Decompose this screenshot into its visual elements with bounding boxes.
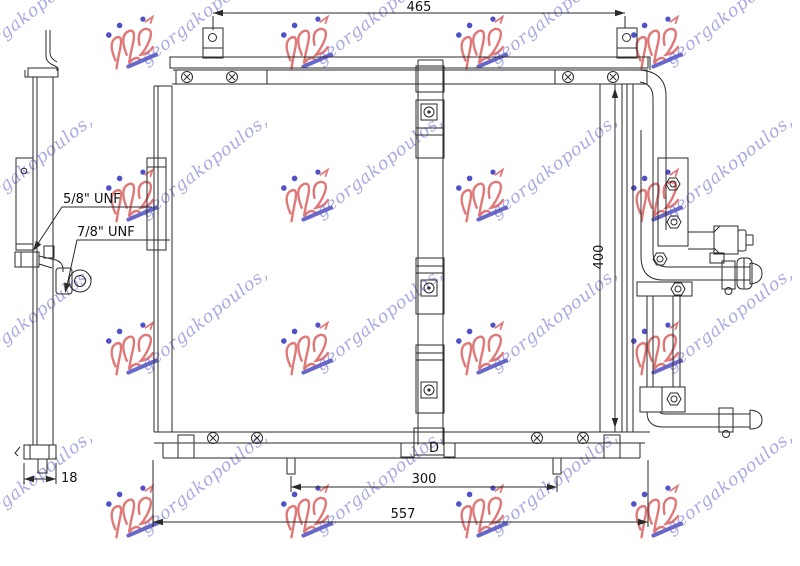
dim-side-depth-value: 18 — [61, 471, 78, 486]
dim-height-value: 400 — [592, 245, 607, 270]
drawing-canvas: georgakopoulos, georgakopoulos, georgako… — [0, 0, 800, 566]
bottom-rail — [154, 428, 650, 474]
front-view-frame — [147, 28, 650, 432]
dim-bottom-inner-value: 300 — [412, 472, 437, 487]
center-mark-label: D — [429, 441, 439, 456]
fitting-large-label: 7/8" UNF — [77, 225, 135, 240]
bottom-rail-screws — [208, 433, 589, 444]
rail-screws — [182, 72, 619, 83]
dim-height: 400 — [592, 88, 618, 428]
fitting-small-label: 5/8" UNF — [63, 192, 121, 207]
dim-overall-width-value: 557 — [391, 507, 416, 522]
condenser-technical-drawing: 18 5/8" UNF 7/8" UNF 465 — [0, 0, 800, 566]
fitting-callouts: 5/8" UNF 7/8" UNF — [30, 192, 170, 294]
dim-bottom-inner: 300 — [291, 472, 557, 492]
dim-overall-width: 557 — [153, 460, 648, 527]
center-divider — [416, 60, 444, 445]
dim-top-width-value: 465 — [407, 0, 432, 15]
side-view — [15, 30, 91, 473]
dim-top-width: 465 — [213, 0, 625, 30]
dim-side-depth: 18 — [24, 463, 78, 486]
